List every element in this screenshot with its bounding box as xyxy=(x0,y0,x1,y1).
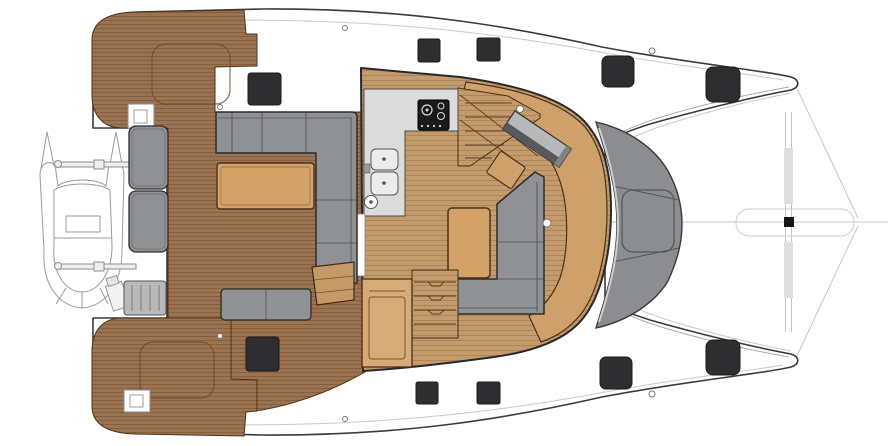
deck-hatch xyxy=(602,56,634,87)
bowsprit-pad-upper xyxy=(784,148,793,204)
deck-fitting xyxy=(517,106,524,113)
sink-tap xyxy=(364,164,370,173)
davit-fitting-upper xyxy=(94,160,104,169)
deck-fitting xyxy=(218,105,223,110)
cockpit-table xyxy=(217,163,314,209)
stern-grill-unit xyxy=(124,281,166,315)
aft-bench xyxy=(221,289,311,320)
deck-hatch xyxy=(600,357,632,389)
deck-fitting xyxy=(543,219,551,227)
davit-fitting-lower xyxy=(94,262,104,271)
deck-hatch xyxy=(418,39,440,62)
stove xyxy=(418,100,449,130)
transom-bench-cushions xyxy=(129,126,168,252)
faucet xyxy=(365,196,378,209)
davit-end-lower xyxy=(55,263,62,270)
deck-hatch xyxy=(706,340,740,375)
transom-step-port xyxy=(124,390,150,412)
helm-step xyxy=(312,262,354,305)
catamaran-floor-plan xyxy=(0,0,890,446)
stairs-port xyxy=(412,270,458,338)
deck-fitting xyxy=(649,48,655,54)
deck-fitting xyxy=(343,26,348,31)
bowsprit-pad-lower xyxy=(784,242,793,298)
deck-hatch xyxy=(477,38,500,61)
saloon xyxy=(352,68,611,371)
deck-hatch xyxy=(246,337,279,371)
deck-fitting xyxy=(649,391,655,397)
transom-step-starboard xyxy=(128,104,154,128)
deck-hatch xyxy=(477,382,500,404)
deck-hatch xyxy=(706,67,740,102)
deck-fitting xyxy=(218,334,223,339)
saloon-table xyxy=(448,208,490,278)
deck-hatch xyxy=(248,73,281,105)
stairs-port-area xyxy=(412,270,458,338)
deck-hatch xyxy=(416,382,438,404)
bow-fitting xyxy=(784,217,794,227)
deck-fitting xyxy=(343,417,348,422)
galley-cabinet xyxy=(362,279,412,367)
davit-end-upper xyxy=(55,161,62,168)
